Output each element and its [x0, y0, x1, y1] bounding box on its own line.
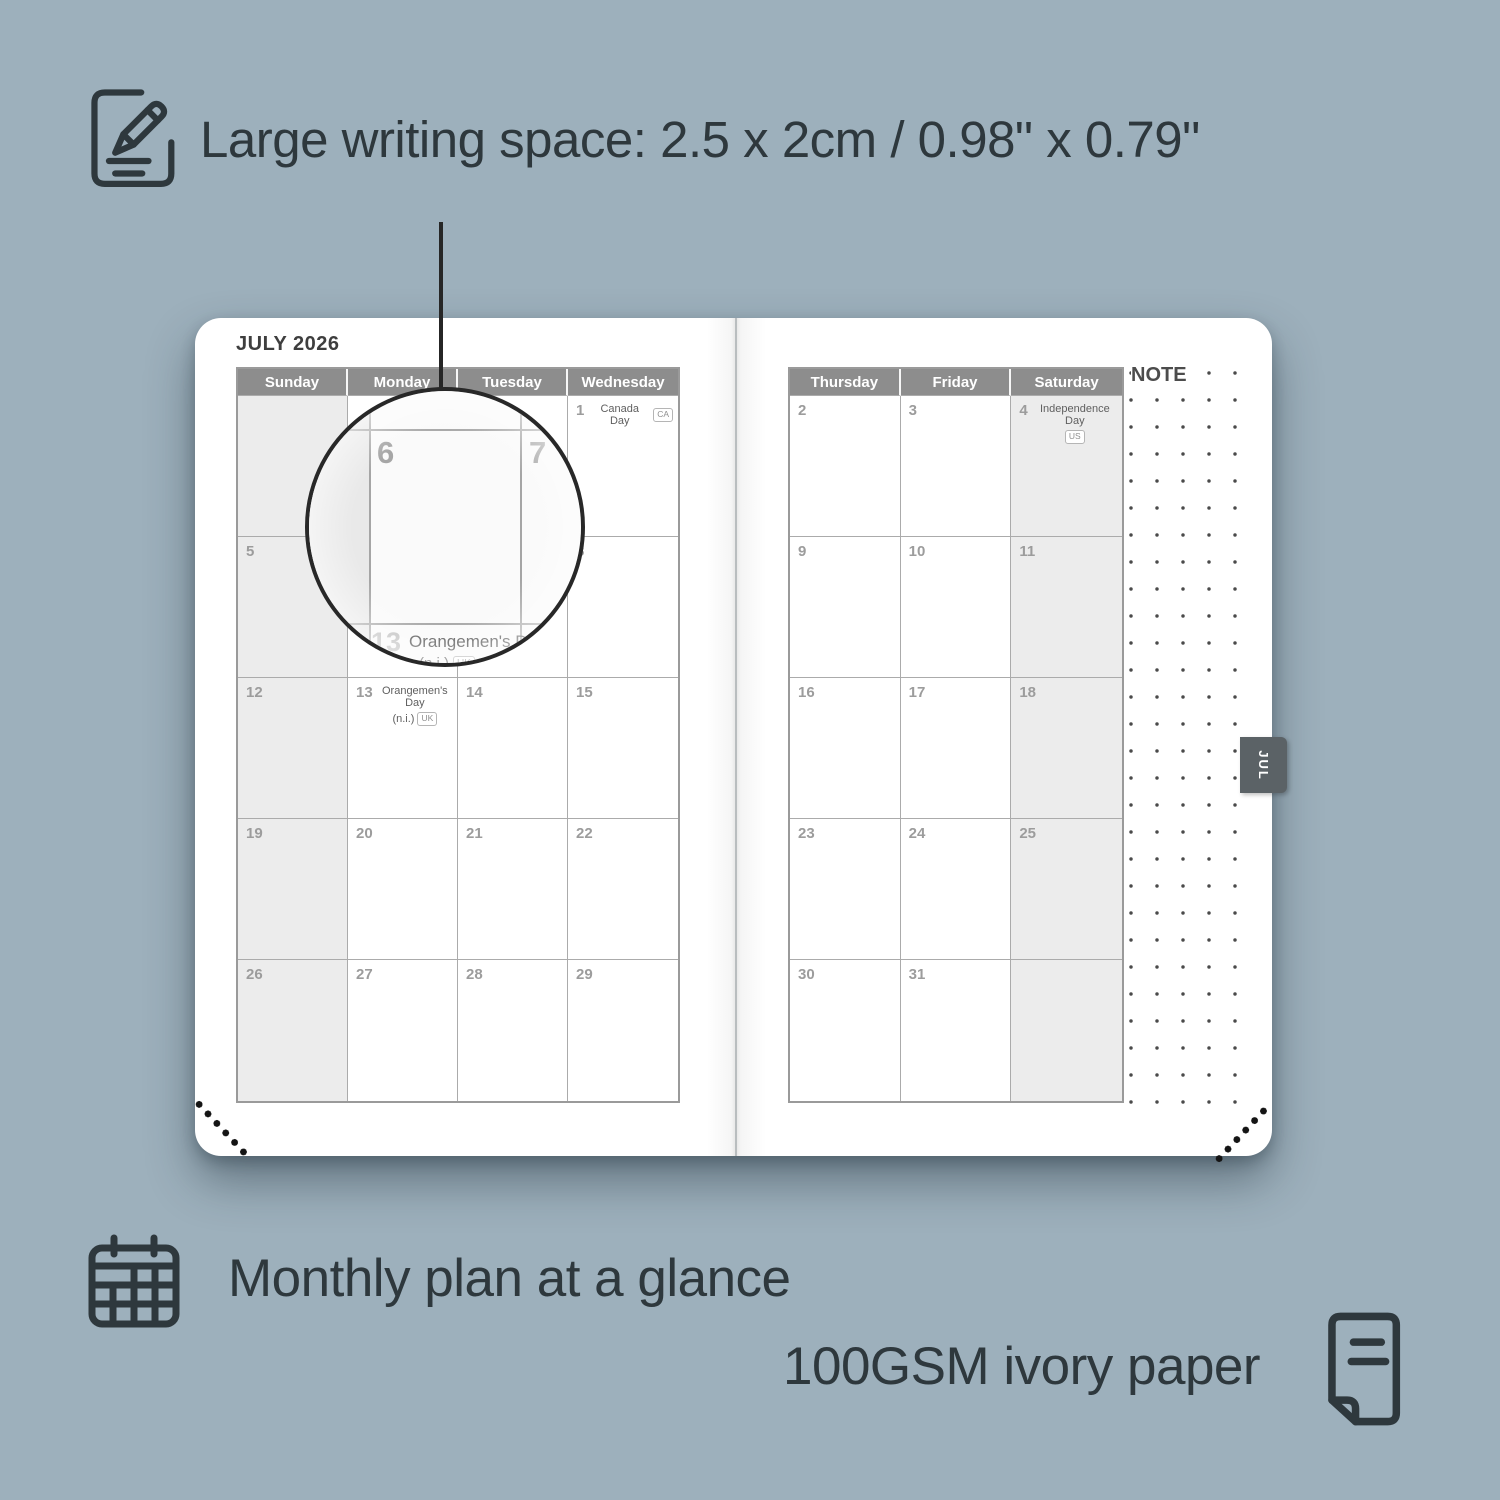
calendar-cell: 2 [790, 396, 901, 537]
writing-note-icon [84, 80, 188, 188]
day-number: 13 [356, 685, 373, 700]
country-badge: UK [417, 712, 437, 725]
calendar-cell [1011, 960, 1122, 1101]
calendar-cell: 23 [790, 819, 901, 960]
spine-line [735, 318, 737, 1156]
day-number: 28 [466, 967, 483, 982]
day-number: 10 [909, 544, 926, 559]
calendar-cell: 14 [458, 678, 568, 819]
day-number: 27 [356, 967, 373, 982]
day-number: 23 [798, 826, 815, 841]
day-number: 15 [576, 685, 593, 700]
calendar-cell: 29 [568, 960, 678, 1101]
calendar-cell: 19 [238, 819, 348, 960]
monthly-plan-caption: Monthly plan at a glance [228, 1247, 791, 1311]
day-number: 22 [576, 826, 593, 841]
day-number: 30 [798, 967, 815, 982]
day-number: 20 [356, 826, 373, 841]
day-number: 11 [1019, 544, 1035, 559]
calendar-cell: 16 [790, 678, 901, 819]
day-number: 9 [798, 544, 806, 559]
holiday-entry: Independence DayUS [1033, 403, 1117, 444]
calendar-cell: 3 [901, 396, 1012, 537]
calendar-cell: 12 [238, 678, 348, 819]
country-badge: CA [653, 408, 673, 421]
day-number: 29 [576, 967, 593, 982]
paper-caption: 100GSM ivory paper [783, 1335, 1260, 1399]
writing-space-caption: Large writing space: 2.5 x 2cm / 0.98" x… [200, 108, 1200, 172]
day-number: 2 [798, 403, 806, 418]
calendar-cell: 28 [458, 960, 568, 1101]
day-number: 1 [576, 403, 584, 418]
calendar-cell: 20 [348, 819, 458, 960]
month-tab: JUL [1240, 737, 1287, 793]
calendar-cell: 8 [568, 537, 678, 678]
day-number: 5 [246, 544, 254, 559]
day-number: 31 [909, 967, 926, 982]
magnifier-content: 6 7 13 Orangemen's Day (n.i.) UK [309, 391, 581, 663]
calendar-cell: 21 [458, 819, 568, 960]
day-number: 3 [909, 403, 917, 418]
day-number: 24 [909, 826, 926, 841]
calendar-icon [84, 1230, 184, 1334]
day-number: 21 [466, 826, 483, 841]
day-header: Thursday [790, 369, 901, 396]
calendar-cell: 18 [1011, 678, 1122, 819]
calendar-cell: 13Orangemen's Day(n.i.)UK [348, 678, 458, 819]
product-image: Large writing space: 2.5 x 2cm / 0.98" x… [0, 0, 1500, 1500]
day-number: 25 [1019, 826, 1036, 841]
calendar-cell: 22 [568, 819, 678, 960]
day-number: 12 [246, 685, 263, 700]
calendar-cell: 4Independence DayUS [1011, 396, 1122, 537]
country-badge: US [1065, 430, 1085, 443]
day-number: 18 [1019, 685, 1036, 700]
calendar-cell: 15 [568, 678, 678, 819]
day-number: 14 [466, 685, 483, 700]
holiday-entry: Orangemen's Day(n.i.)UK [378, 685, 452, 726]
lens-glow [309, 391, 581, 663]
month-title: JULY 2026 [236, 333, 339, 356]
note-label: NOTE [1131, 362, 1195, 389]
paper-icon [1318, 1310, 1406, 1428]
month-tab-label: JUL [1256, 750, 1271, 781]
magnifier-circle: 6 7 13 Orangemen's Day (n.i.) UK [305, 387, 585, 667]
day-number: 17 [909, 685, 926, 700]
lens-pointer-line [439, 222, 443, 394]
day-number: 16 [798, 685, 815, 700]
calendar-cell: 31 [901, 960, 1012, 1101]
day-header: Friday [901, 369, 1012, 396]
calendar-right-page: ThursdayFridaySaturday234Independence Da… [788, 367, 1124, 1103]
holiday-entry: Canada DayCA [589, 403, 673, 427]
corner-stitch-right [1213, 1102, 1272, 1165]
calendar-cell: 25 [1011, 819, 1122, 960]
calendar-cell: 27 [348, 960, 458, 1101]
calendar-cell: 11 [1011, 537, 1122, 678]
calendar-cell: 17 [901, 678, 1012, 819]
day-header: Wednesday [568, 369, 678, 396]
calendar-cell: 10 [901, 537, 1012, 678]
calendar-cell: 26 [238, 960, 348, 1101]
calendar-cell: 30 [790, 960, 901, 1101]
corner-stitch-left [193, 1099, 252, 1162]
day-number: 19 [246, 826, 263, 841]
calendar-cell: 24 [901, 819, 1012, 960]
calendar-cell: 9 [790, 537, 901, 678]
day-header: Saturday [1011, 369, 1122, 396]
day-number: 26 [246, 967, 263, 982]
note-dot-grid [1128, 370, 1254, 1108]
day-number: 4 [1019, 403, 1027, 418]
